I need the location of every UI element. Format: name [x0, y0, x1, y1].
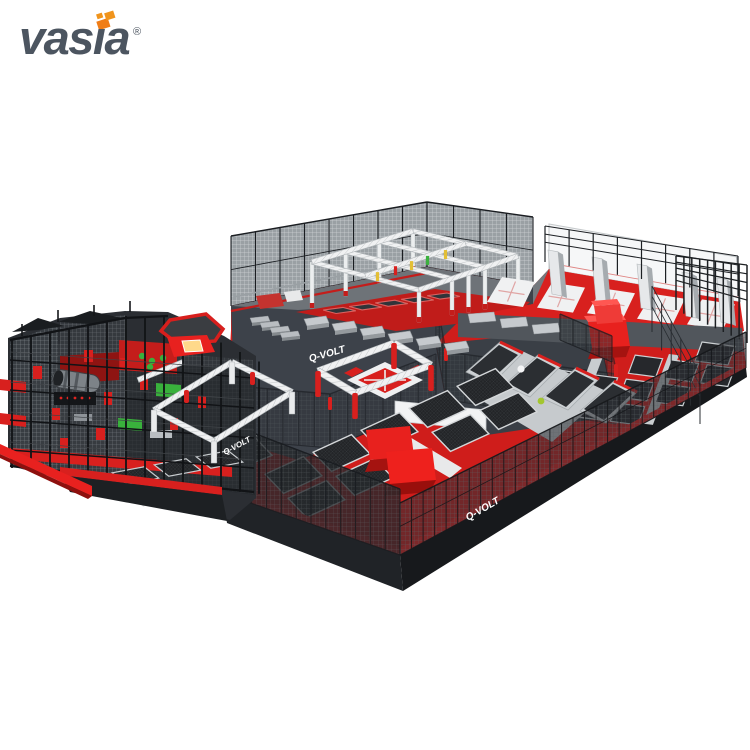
svg-text:vasıa: vasıa [19, 11, 129, 64]
svg-text:®: ® [133, 26, 141, 38]
